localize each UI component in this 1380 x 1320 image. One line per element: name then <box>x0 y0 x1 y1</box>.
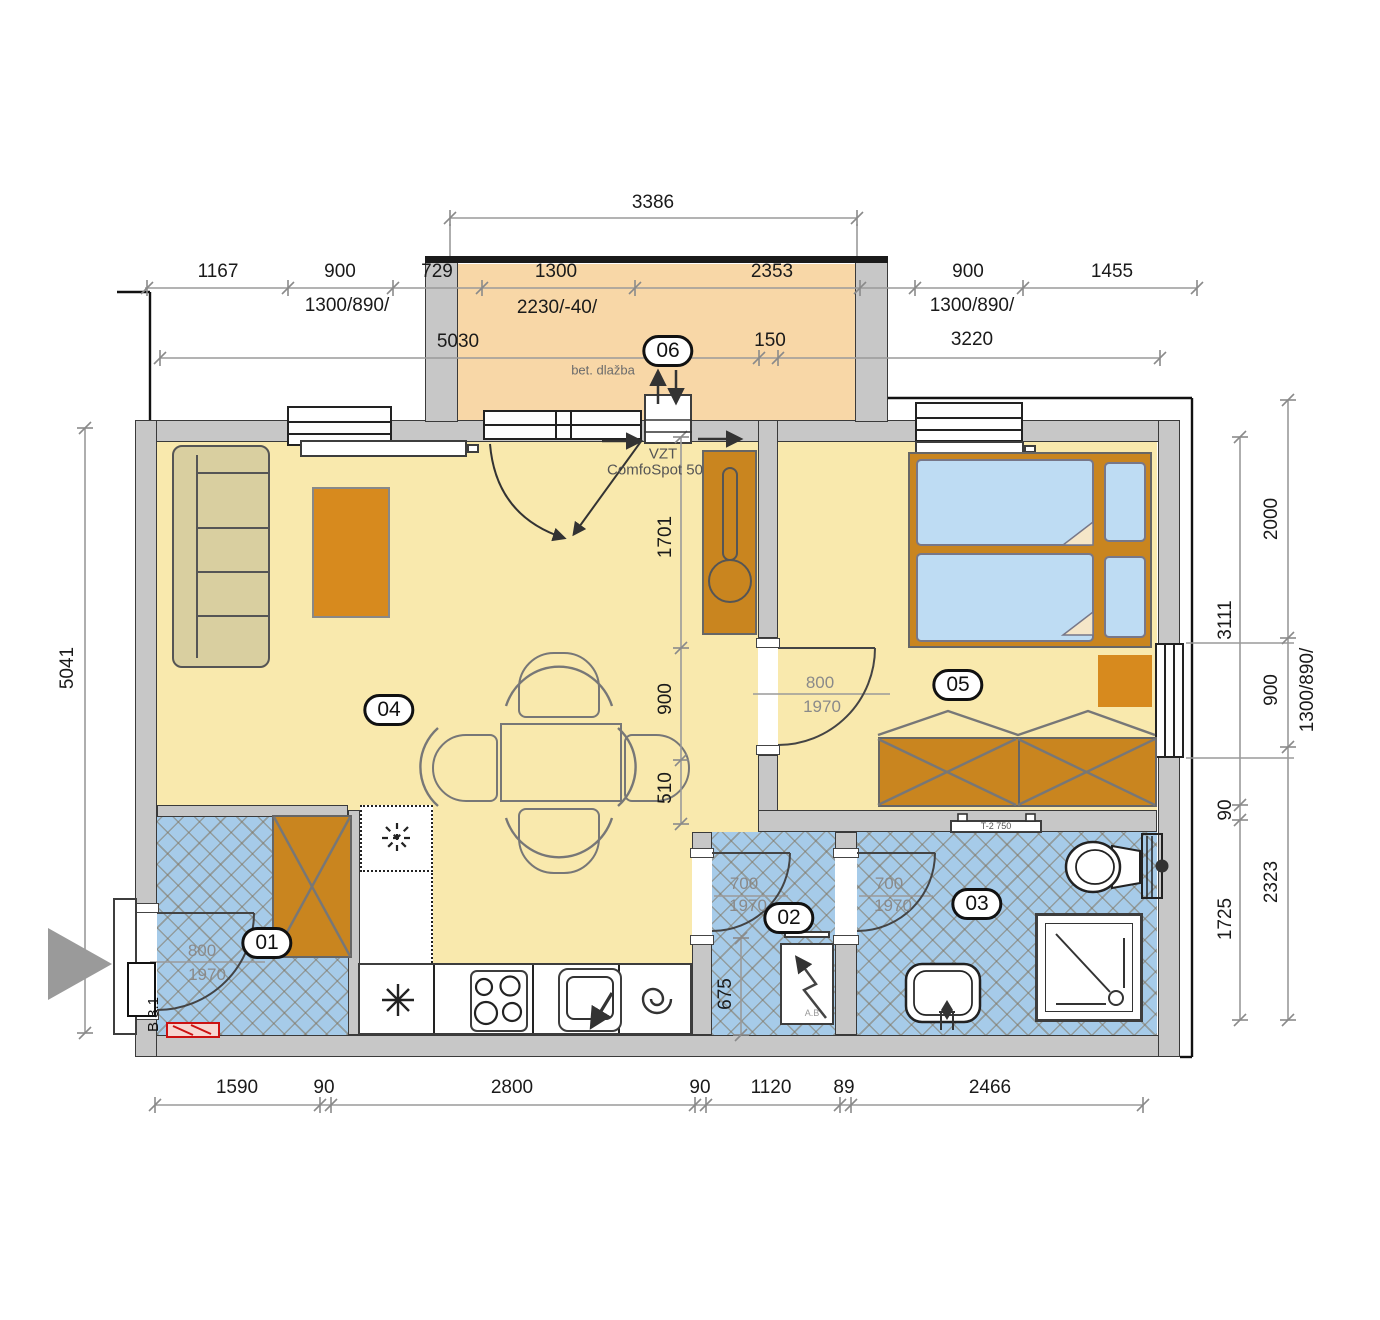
dim-label: 900 <box>655 683 677 715</box>
towel-radiator-label: T-2 750 <box>981 821 1012 831</box>
dim-left-total: 5041 <box>57 647 79 689</box>
window-bedroom-right <box>1155 643 1184 758</box>
sofa <box>172 445 270 668</box>
stove <box>470 970 528 1032</box>
wall-living-bedroom-lower <box>758 755 778 812</box>
dining-table <box>500 723 622 802</box>
wall-bottom <box>135 1035 1180 1057</box>
mattress <box>916 553 1094 642</box>
dim-label: 3220 <box>951 329 993 351</box>
balcony-floor-label: bet. dlažba <box>571 363 635 378</box>
floor-plan: 01 02 03 04 05 06 3386 1167 900 729 1300… <box>0 0 1380 1320</box>
radiator-living <box>300 440 467 457</box>
dim-label: 90 <box>313 1077 334 1099</box>
dim-label: 2800 <box>491 1077 533 1099</box>
window-size-label: 1300/890/ <box>1297 648 1319 733</box>
window-size-label: 1300/890/ <box>930 295 1015 317</box>
electric-heater <box>166 1022 220 1038</box>
sink-basin <box>566 976 614 1020</box>
jamb <box>756 745 780 755</box>
dim-label: 90 <box>1215 799 1237 820</box>
door-dim: 800 <box>188 941 216 961</box>
window-size-label: 1300/890/ <box>305 295 390 317</box>
door-dim: 1970 <box>188 965 226 985</box>
jamb <box>756 638 780 648</box>
wall-balcony-top <box>425 256 888 263</box>
door-dim: 1970 <box>874 896 912 916</box>
door-dim: 700 <box>730 874 758 894</box>
dim-label: 1120 <box>751 1077 792 1099</box>
dim-label: 900 <box>952 261 984 283</box>
fridge-freezer-top <box>360 805 433 872</box>
dim-label: 1300 <box>535 261 577 283</box>
room-label-01: 01 <box>241 927 292 959</box>
door-dim: 800 <box>806 673 834 693</box>
dim-label: 675 <box>715 978 737 1010</box>
dim-label: 3111 <box>1215 600 1237 639</box>
dim-label: 90 <box>689 1077 710 1099</box>
radiator-cap <box>467 444 479 453</box>
door-dim: 1970 <box>803 697 841 717</box>
dim-label: 1701 <box>655 516 677 558</box>
dim-label: 2353 <box>751 261 793 283</box>
chair-bottom <box>518 808 600 874</box>
jamb <box>690 848 714 858</box>
vzt-model-label: ComfoSpot 50 <box>607 462 703 479</box>
mattress <box>916 459 1094 546</box>
jamb <box>833 848 859 858</box>
shower-inner <box>1045 923 1133 1012</box>
room-label-03: 03 <box>951 888 1002 920</box>
room-label-06: 06 <box>642 335 693 367</box>
dim-label: 2000 <box>1261 498 1283 540</box>
door-dim: 700 <box>875 874 903 894</box>
entry-door-code: B 3.1 <box>127 962 156 1017</box>
hall-wardrobe-mirror <box>702 450 757 635</box>
wall-wc-bathroom-lower <box>835 943 857 1035</box>
wall-living-bedroom-upper <box>758 420 778 638</box>
room-label-02: 02 <box>763 902 814 934</box>
bedside-table <box>1098 655 1152 707</box>
dim-label: 1455 <box>1091 261 1133 283</box>
pillow <box>1104 462 1146 542</box>
wall-balcony-right <box>855 262 888 422</box>
jamb <box>833 935 859 945</box>
opening-bedroom-door <box>758 648 778 745</box>
dim-label: 900 <box>324 261 356 283</box>
vzt-label: VZT <box>649 446 677 463</box>
jamb <box>690 935 714 945</box>
dim-label: 1167 <box>198 261 239 283</box>
opening-bath-door <box>835 858 857 935</box>
dim-balcony-width: 3386 <box>632 192 674 214</box>
chair-left <box>432 734 498 802</box>
door-dim: 1970 <box>729 896 767 916</box>
dim-label: 5030 <box>437 331 479 353</box>
dim-label: 510 <box>655 772 677 804</box>
dim-label: 89 <box>833 1077 854 1099</box>
wall-kitchen-wc-lower <box>692 943 712 1035</box>
dim-label: 1725 <box>1215 898 1237 940</box>
balcony-door-frame <box>483 410 642 440</box>
bedroom-wardrobe <box>878 737 1157 807</box>
coffee-table <box>312 487 390 618</box>
dim-label: 900 <box>1261 674 1283 706</box>
entrance-arrow-icon <box>48 928 112 1000</box>
distribution-board-label: A.B <box>805 1008 820 1018</box>
room-label-05: 05 <box>932 669 983 701</box>
room-label-04: 04 <box>363 694 414 726</box>
chair-top <box>518 652 600 718</box>
dim-label: 1590 <box>216 1077 258 1099</box>
dim-label: 2323 <box>1261 861 1283 903</box>
pillow <box>1104 556 1146 638</box>
opening-wc-door <box>692 858 712 935</box>
door-size-label: 2230/-40/ <box>517 297 597 319</box>
dim-label: 150 <box>754 330 786 352</box>
vzt-unit <box>644 394 692 444</box>
dim-label: 729 <box>421 261 453 283</box>
window-bedroom-top <box>915 402 1023 442</box>
dim-label: 2466 <box>969 1077 1011 1099</box>
